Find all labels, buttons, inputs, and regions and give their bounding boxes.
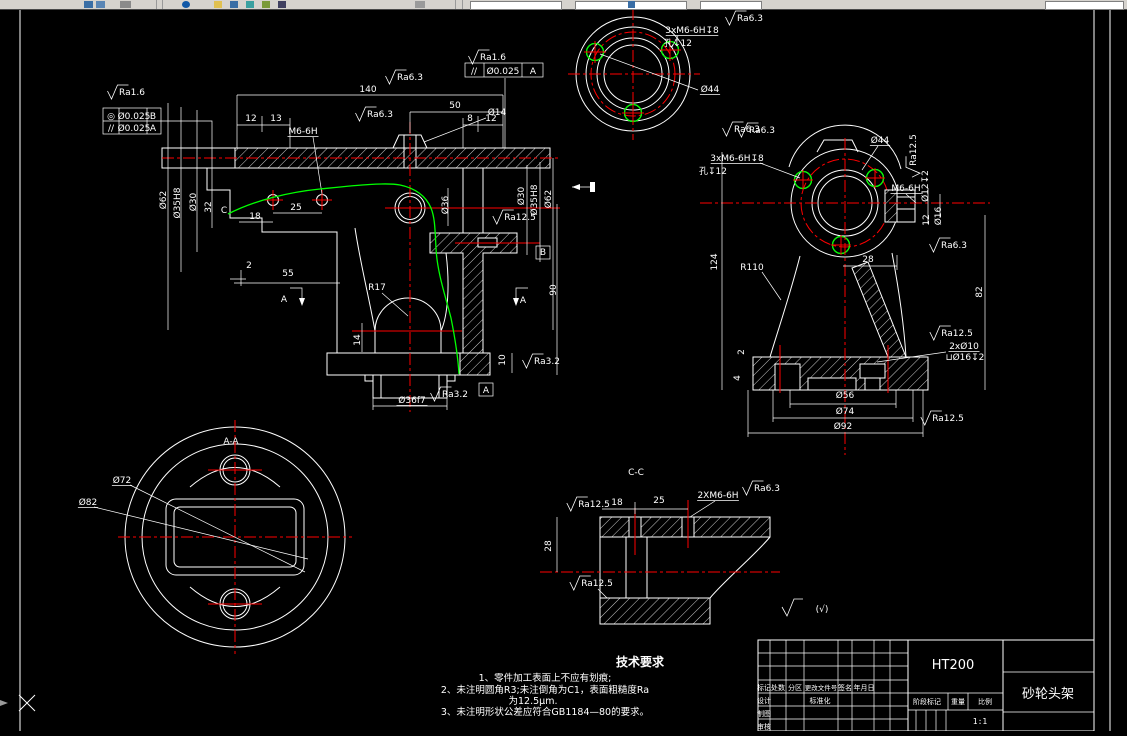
toolbar [0,0,1127,10]
dim-d36: Ø36 [440,195,451,214]
svg-text:25: 25 [653,496,664,506]
svg-text:A: A [150,124,157,134]
tol-val-1: Ø0.025 [118,111,151,122]
dim-25: 25 [290,203,301,213]
svg-text://: // [471,67,478,77]
svg-text:Ra3.2: Ra3.2 [534,357,560,367]
hole-depth-top-view: 孔↧12 [664,38,692,49]
header-count: 处数 [771,683,785,692]
svg-text:A: A [483,386,490,396]
thread-callout-top-view: 3xM6-6H↧8 [665,26,719,36]
material-spec: HT200 [932,658,975,673]
toolbar-input[interactable] [1045,1,1124,10]
design-label: 设计 [757,696,771,705]
svg-text:R110: R110 [740,263,764,273]
dim-25-cc: 25 [653,496,664,506]
dim-d72: Ø72 [112,475,132,486]
svg-text:2: 2 [246,261,252,271]
part-name: 砂轮头架 [1022,687,1074,702]
svg-text:55: 55 [282,269,293,279]
dim-28-side: 28 [862,255,874,265]
dim-2xd10: 2xØ10 [949,341,980,352]
svg-text:Ø36f7: Ø36f7 [398,395,425,406]
toolbar-button-icon[interactable] [182,1,190,8]
dim-13: 13 [270,114,281,124]
dim-124: 124 [710,253,720,270]
tol-datum-1: B [150,112,156,122]
dim-140: 140 [359,85,376,95]
svg-text:C-C: C-C [628,468,644,478]
svg-text:⊔Ø16↧2: ⊔Ø16↧2 [946,352,985,363]
tol-val-2: Ø0.025 [118,123,151,134]
svg-text:Ø82: Ø82 [79,497,98,508]
toolbar-button-icon[interactable] [262,1,270,8]
standardization-label: 标准化 [810,696,831,705]
svg-text:Ø16: Ø16 [933,206,944,225]
toolbar-button-icon[interactable] [84,1,93,8]
dim-d16: Ø16 [933,206,944,225]
svg-text:28: 28 [544,540,554,552]
svg-text:12: 12 [485,114,496,124]
svg-text:Ø44: Ø44 [871,135,890,146]
svg-text:2: 2 [737,349,747,355]
svg-text:M6-6H: M6-6H [288,127,317,137]
svg-text:18: 18 [249,212,261,222]
draft-label: 制图 [757,709,771,718]
toolbar-separator [156,0,157,9]
svg-text:28: 28 [862,255,874,265]
dim-d44-side: Ø44 [870,135,890,146]
dim-8: 8 [467,114,473,124]
svg-text:Ø35H8: Ø35H8 [172,187,183,218]
toolbar-button-icon[interactable] [415,1,425,8]
dim-d30-left: Ø30 [188,192,199,211]
dim-28-cc: 28 [544,540,554,552]
dim-d30-right: Ø30 [516,186,527,205]
svg-text:12: 12 [245,114,256,124]
svg-text:Ø92: Ø92 [834,421,853,432]
dim-r17: R17 [368,283,386,293]
dim-18-cc: 18 [611,498,623,508]
svg-text:10: 10 [498,354,508,366]
toolbar-input[interactable] [700,1,762,10]
header-change-doc: 更改文件号 [805,683,838,692]
toolbar-button-icon[interactable] [246,1,254,8]
toolbar-button-icon[interactable] [96,1,105,8]
svg-text:M6-6H: M6-6H [891,184,920,194]
svg-text://: // [108,124,115,134]
cad-drawing-canvas[interactable]: 技术要求 1、零件加工表面上不应有划痕; 2、未注明圆角R3;未注倒角为C1，表… [0,0,1127,736]
dim-2-side: 2 [737,349,747,355]
dim-32: 32 [204,201,214,212]
toolbar-separator [162,0,163,9]
svg-text:Ø0.025: Ø0.025 [118,111,151,122]
tol-sym-1: ◎ [107,112,115,122]
svg-text:Ø35H8: Ø35H8 [529,184,540,215]
toolbar-button-icon[interactable] [230,1,238,8]
dim-55: 55 [282,269,293,279]
dim-spotface: ⊔Ø16↧2 [946,352,985,363]
svg-text:Ø30: Ø30 [188,192,199,211]
thread-callout-boss: M6-6H [891,184,922,194]
svg-text:Ra6.3: Ra6.3 [397,73,423,83]
rest-roughness-parens: (√) [816,604,829,615]
svg-text:Ø36: Ø36 [440,195,451,214]
tech-req-line: 3、未注明形状公差应符合GB1184—80的要求。 [441,706,649,718]
svg-text:90: 90 [549,284,559,296]
svg-text:Ø72: Ø72 [113,475,132,486]
tech-req-title: 技术要求 [616,654,665,669]
dim-d82: Ø82 [78,497,98,508]
svg-text:Ø30: Ø30 [516,186,527,205]
svg-text:Ra1.6: Ra1.6 [480,53,506,63]
svg-text:Ø74: Ø74 [836,406,855,417]
thread-callout-front: M6-6H [288,127,319,137]
dim-12a: 12 [245,114,256,124]
svg-text:18: 18 [611,498,623,508]
dim-d44-top: Ø44 [700,84,720,95]
svg-text:Ra12.5: Ra12.5 [504,213,536,223]
dim-90: 90 [549,284,559,296]
svg-text:A: A [281,295,288,305]
svg-text:Ø56: Ø56 [836,390,855,401]
svg-text:孔↧12: 孔↧12 [664,38,692,49]
tol-val-3: Ø0.025 [487,66,520,77]
svg-text:A: A [530,67,537,77]
svg-text:25: 25 [290,203,301,213]
toolbar-separator [462,0,463,9]
svg-text:124: 124 [710,253,720,270]
dim-18: 18 [249,212,261,222]
scale-label: 比例 [978,697,992,706]
svg-text:A: A [520,296,527,306]
header-zone: 分区 [788,683,802,692]
dim-2: 2 [246,261,252,271]
svg-text:3xM6-6H↧8: 3xM6-6H↧8 [665,26,719,36]
dim-14: 14 [353,334,363,346]
dim-4-side: 4 [733,375,743,381]
toolbar-button-icon[interactable] [214,1,222,8]
weight-label: 重量 [951,698,965,706]
toolbar-input[interactable] [470,1,562,10]
dim-d35h8-right: Ø35H8 [529,184,540,215]
tech-req-line: 2、未注明圆角R3;未注倒角为C1，表面粗糙度Ra [441,684,649,696]
dim-82: 82 [975,286,985,297]
dim-d74: Ø74 [836,406,855,417]
dim-d36f7: Ø36f7 [397,395,428,406]
dim-d35h8-left: Ø35H8 [172,187,183,218]
svg-text:C: C [221,206,227,216]
tol-datum-3: A [530,67,537,77]
dim-d62-left: Ø62 [158,191,169,210]
svg-text:B: B [150,112,156,122]
svg-text:32: 32 [204,201,214,212]
svg-text:8: 8 [467,114,473,124]
thread-callout-cc: 2XM6-6H [697,491,739,501]
dim-r110: R110 [740,263,764,273]
svg-text:14: 14 [353,334,363,346]
svg-text:Ra6.3: Ra6.3 [367,110,393,120]
thread-callout-side: 3xM6-6H↧8 [710,154,764,164]
svg-text:Ra12.5: Ra12.5 [941,329,973,339]
hole-depth-side: 孔↧12 [699,166,727,177]
toolbar-button-icon[interactable] [278,1,286,8]
datum-b-box: B [540,248,546,258]
dim-d56: Ø56 [836,390,855,401]
svg-text:Ø62: Ø62 [158,191,169,210]
svg-text:B: B [540,248,546,258]
svg-text:82: 82 [975,286,985,297]
label-section-aa: A-A [223,437,239,447]
stage-mark-label: 阶段标记 [913,697,941,706]
svg-text:Ø44: Ø44 [701,84,720,95]
svg-text:Ø62: Ø62 [543,190,554,209]
svg-text:Ra6.3: Ra6.3 [734,125,760,135]
svg-text:◎: ◎ [107,112,115,122]
svg-text:4: 4 [733,375,743,381]
check-label: 审核 [757,722,771,731]
svg-text:R17: R17 [368,283,386,293]
tol-sym-2: // [108,124,115,134]
svg-text:140: 140 [359,85,376,95]
dim-10: 10 [498,354,508,366]
svg-text:Ra3.2: Ra3.2 [442,390,468,400]
svg-text:2XM6-6H: 2XM6-6H [697,491,738,501]
svg-text:A-A: A-A [223,437,239,447]
tol-datum-2: A [150,124,157,134]
toolbar-separator [455,0,456,9]
label-section-cc: C-C [628,468,644,478]
toolbar-button-icon[interactable] [628,1,635,8]
dim-12c: 12 [922,214,932,225]
svg-text:Ra1.6: Ra1.6 [119,88,145,98]
section-a-right: A [520,296,527,306]
dim-d92: Ø92 [834,421,853,432]
svg-text:Ra12.5: Ra12.5 [909,134,919,166]
svg-text:Ra6.3: Ra6.3 [737,14,763,24]
tech-req-line: 1、零件加工表面上不应有划痕; [479,672,612,684]
tech-req-line: 为12.5μm. [509,695,558,707]
svg-text:50: 50 [449,101,461,111]
header-signature: 签名 [838,683,852,692]
scale-value: 1:1 [973,717,988,726]
dim-d12-depth: Ø12↧2 [920,170,931,202]
svg-text:Ra6.3: Ra6.3 [941,241,967,251]
section-a-left: A [281,295,288,305]
dim-50: 50 [449,101,461,111]
tol-sym-3: // [471,67,478,77]
dim-12b: 12 [485,114,496,124]
print-button-icon[interactable] [120,1,131,8]
svg-text:(√): (√) [816,604,829,615]
svg-text:13: 13 [270,114,281,124]
svg-text:Ø12↧2: Ø12↧2 [920,170,931,202]
svg-text:12: 12 [922,214,932,225]
svg-text:Ø0.025: Ø0.025 [118,123,151,134]
svg-text:Ra6.3: Ra6.3 [754,484,780,494]
model-space-background [0,0,1127,731]
section-a-box: A [483,386,490,396]
header-date: 年月日 [854,683,875,692]
dim-d62-right: Ø62 [543,190,554,209]
label-c: C [221,206,227,216]
svg-text:Ra12.5: Ra12.5 [578,500,610,510]
svg-text:Ra12.5: Ra12.5 [581,579,613,589]
svg-text:孔↧12: 孔↧12 [699,166,727,177]
svg-text:Ø0.025: Ø0.025 [487,66,520,77]
svg-text:3xM6-6H↧8: 3xM6-6H↧8 [710,154,764,164]
header-mark: 标记 [757,683,771,692]
svg-text:Ra12.5: Ra12.5 [932,414,964,424]
svg-text:2xØ10: 2xØ10 [949,341,979,352]
